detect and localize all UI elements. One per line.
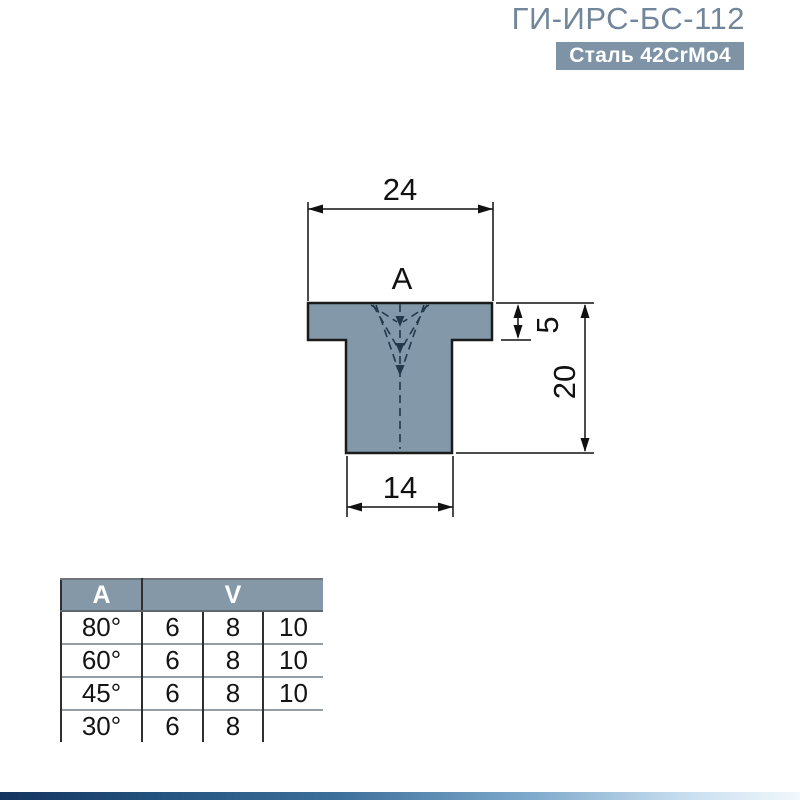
- cell-v1: 6: [142, 677, 203, 710]
- cell-v2: 8: [203, 710, 263, 742]
- arrowhead-down: [514, 325, 523, 339]
- table-row: 60° 6 8 10: [61, 644, 323, 677]
- dim-label-stem-width: 14: [383, 470, 417, 505]
- dim-label-total-height: 20: [547, 365, 582, 399]
- spec-table: A V 80° 6 8 10 60° 6 8 10 45° 6 8 10 30°…: [60, 578, 323, 742]
- cell-v3: 10: [263, 644, 323, 677]
- cell-angle: 45°: [61, 677, 142, 710]
- arrowhead-down: [581, 438, 590, 452]
- column-header-angle: A: [61, 579, 142, 611]
- cell-v1: 6: [142, 644, 203, 677]
- footer-gradient-bar: [0, 792, 800, 800]
- table-row: 80° 6 8 10: [61, 611, 323, 644]
- dim-label-top-width: 24: [383, 172, 417, 207]
- table-row: 30° 6 8: [61, 710, 323, 742]
- cell-v1: 6: [142, 611, 203, 644]
- cell-v3: 10: [263, 611, 323, 644]
- cell-angle: 30°: [61, 710, 142, 742]
- arrowhead-up: [514, 304, 523, 318]
- cell-v3: [263, 710, 323, 742]
- cell-v1: 6: [142, 710, 203, 742]
- arrowhead-left: [347, 503, 362, 512]
- table-row: 45° 6 8 10: [61, 677, 323, 710]
- arrowhead-right: [438, 503, 453, 512]
- cell-v2: 8: [203, 677, 263, 710]
- arrowhead-right: [478, 205, 493, 214]
- column-header-v: V: [142, 579, 323, 611]
- dim-label-flange-height: 5: [530, 316, 565, 333]
- spec-table-header-row: A V: [61, 579, 323, 611]
- cell-angle: 80°: [61, 611, 142, 644]
- section-label: A: [392, 261, 413, 296]
- arrowhead-up: [581, 304, 590, 318]
- cell-v3: 10: [263, 677, 323, 710]
- cell-v2: 8: [203, 644, 263, 677]
- arrowhead-left: [308, 205, 323, 214]
- cell-angle: 60°: [61, 644, 142, 677]
- cell-v2: 8: [203, 611, 263, 644]
